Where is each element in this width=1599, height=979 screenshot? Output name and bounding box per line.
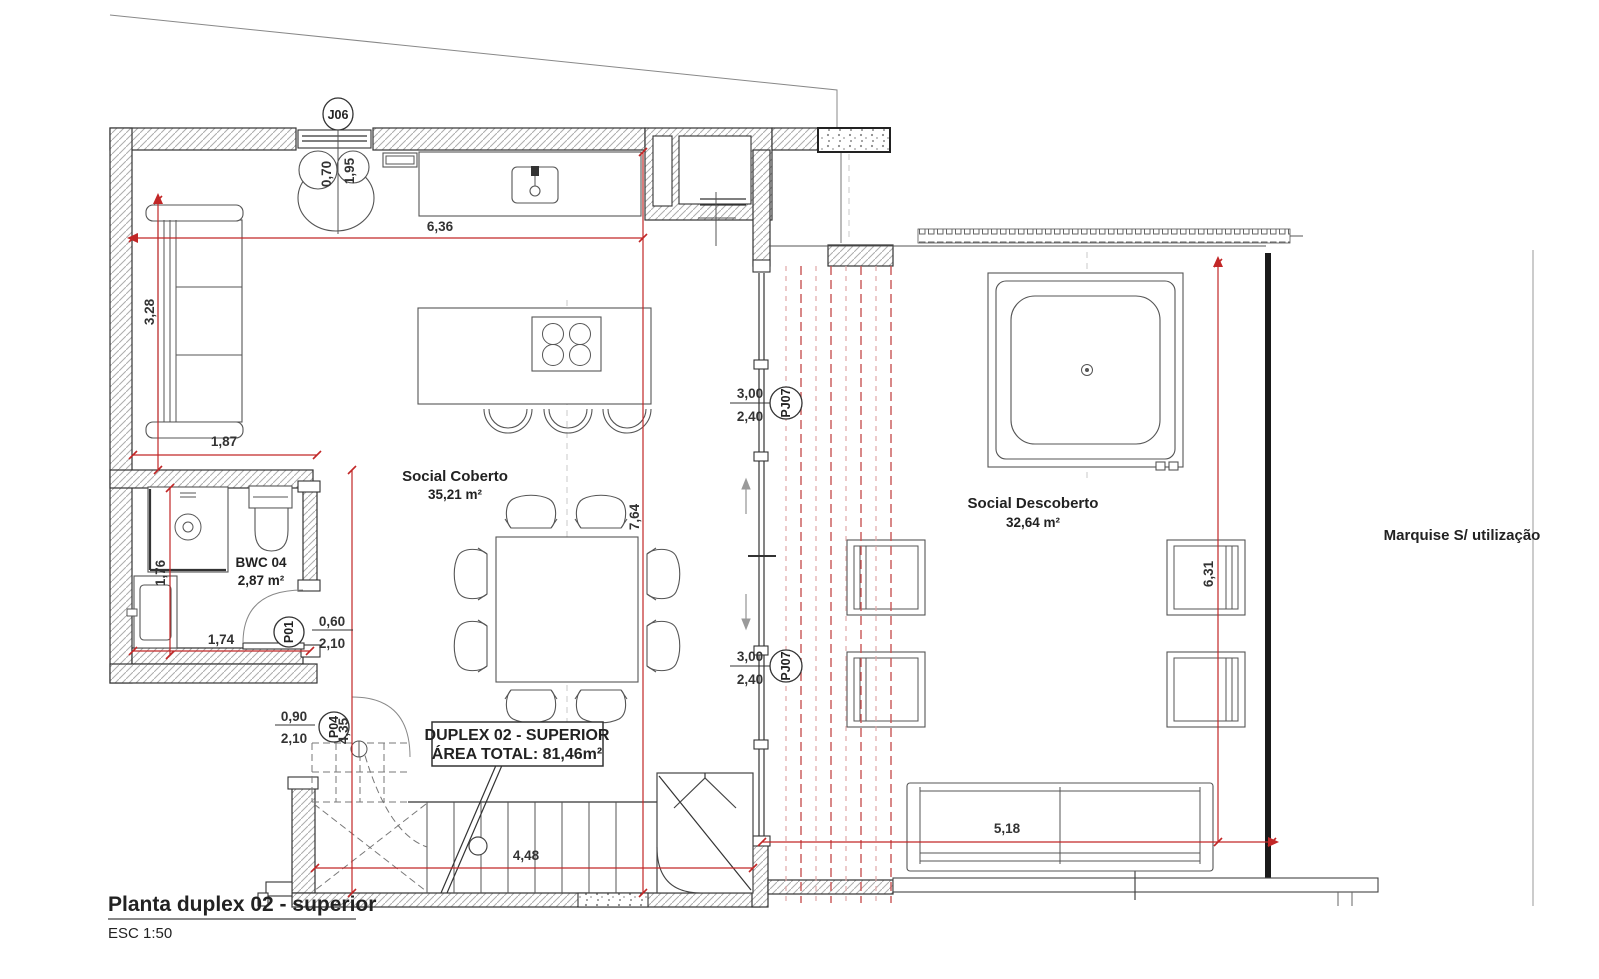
chair	[454, 620, 487, 672]
kitchen	[298, 151, 651, 433]
label-bwc04-area: 2,87 m²	[238, 573, 285, 588]
dim-p01-w: 0,60	[319, 614, 345, 629]
chair	[647, 548, 680, 600]
dim-pj07b-h: 2,40	[737, 672, 763, 687]
dim-764: 7,64	[627, 503, 642, 530]
dim-p04-h: 2,10	[281, 731, 307, 746]
floor-plan-drawing: J06 P01 P04 PJ07 PJ07 6,36 3,28 1,87 1,7…	[0, 0, 1599, 979]
cooktop	[532, 317, 601, 371]
label-marquise: Marquise S/ utilização	[1384, 527, 1541, 544]
window-j06	[298, 130, 371, 148]
dim-187: 1,87	[211, 434, 237, 449]
door-p04	[351, 697, 410, 757]
dim-176: 1,76	[153, 559, 168, 586]
bar-stool	[484, 409, 532, 433]
chair	[505, 690, 557, 723]
dim-448: 4,48	[513, 848, 540, 863]
dim-pj07b-w: 3,00	[737, 649, 763, 664]
bar-stool	[544, 409, 592, 433]
dim-518: 5,18	[994, 821, 1021, 836]
info-box: DUPLEX 02 - SUPERIOR ÁREA TOTAL: 81,46m²	[425, 722, 610, 766]
dim-j06-w: 0,70	[319, 161, 334, 187]
label-social-coberto: Social Coberto	[402, 468, 508, 485]
dim-435: 4,35	[336, 717, 351, 744]
glass-guardrail	[1265, 253, 1271, 880]
dim-p04-w: 0,90	[281, 709, 307, 724]
sofa	[146, 205, 243, 438]
spa	[988, 273, 1183, 470]
faucet-icon	[531, 166, 539, 176]
sliding-glass-wall	[742, 273, 776, 836]
terrace-chair	[1167, 652, 1245, 727]
roof-outline	[110, 15, 837, 128]
tag-j06: J06	[328, 108, 349, 122]
dining-table	[496, 537, 638, 682]
label-social-descoberto: Social Descoberto	[968, 495, 1099, 512]
dim-328: 3,28	[142, 298, 157, 325]
dim-pj07t-h: 2,40	[737, 409, 763, 424]
title-block: Planta duplex 02 - superior ESC 1:50	[108, 893, 376, 942]
terrace-bench	[907, 783, 1213, 871]
slide-direction-arrows	[742, 479, 750, 629]
dim-174: 1,74	[208, 632, 235, 647]
chair	[454, 548, 487, 600]
terrace	[847, 273, 1245, 871]
chair	[575, 690, 627, 723]
bar-stool	[603, 409, 651, 433]
label-bwc04: BWC 04	[235, 555, 286, 570]
terrace-chair	[847, 540, 925, 615]
drawing-title: Planta duplex 02 - superior	[108, 893, 376, 916]
tag-p01: P01	[282, 621, 296, 643]
chair	[505, 495, 557, 528]
tag-pj07-top: PJ07	[779, 388, 793, 417]
dim-j06-h: 1,95	[342, 157, 357, 184]
label-social-descoberto-area: 32,64 m²	[1006, 515, 1061, 530]
chair	[575, 495, 627, 528]
dim-p01-h: 2,10	[319, 636, 345, 651]
dim-pj07t-w: 3,00	[737, 386, 763, 401]
info-box-line1: DUPLEX 02 - SUPERIOR	[425, 727, 610, 744]
drawing-scale: ESC 1:50	[108, 925, 172, 942]
info-box-line2: ÁREA TOTAL: 81,46m²	[432, 744, 602, 763]
terrace-chair	[847, 652, 925, 727]
dim-631: 6,31	[1201, 560, 1216, 587]
toilet	[249, 486, 292, 551]
tag-pj07-bottom: PJ07	[779, 651, 793, 680]
floor-plan-page: J06 P01 P04 PJ07 PJ07 6,36 3,28 1,87 1,7…	[0, 0, 1599, 979]
dim-636: 6,36	[427, 219, 454, 234]
label-social-coberto-area: 35,21 m²	[428, 487, 483, 502]
plant	[298, 151, 374, 231]
chair	[647, 620, 680, 672]
shower	[148, 487, 228, 572]
